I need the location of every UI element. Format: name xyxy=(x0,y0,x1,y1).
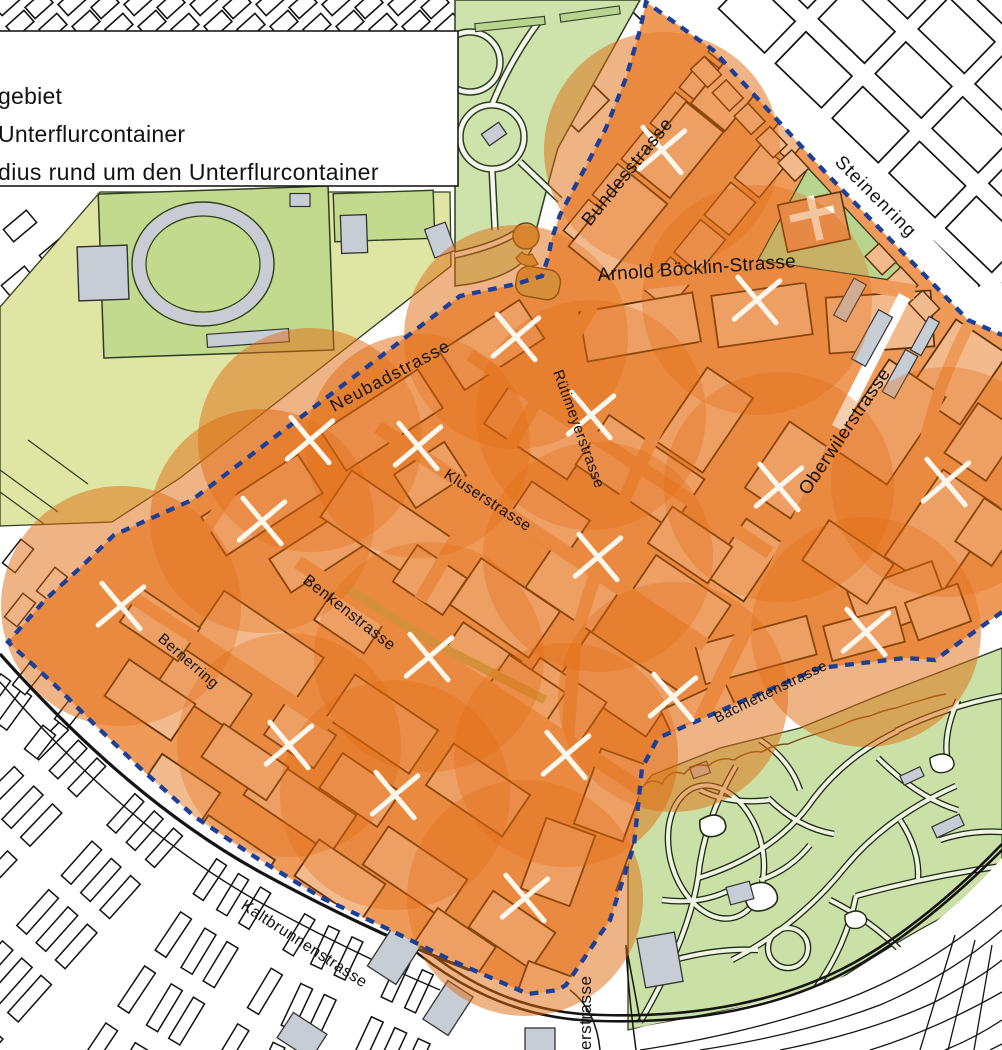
svg-text:dius rund um den Unterflurcont: dius rund um den Unterflurcontainer xyxy=(0,159,379,185)
svg-text:Unterflurcontainer: Unterflurcontainer xyxy=(0,121,185,147)
svg-text:gebiet: gebiet xyxy=(0,83,63,109)
svg-text:erstrasse: erstrasse xyxy=(576,976,595,1050)
